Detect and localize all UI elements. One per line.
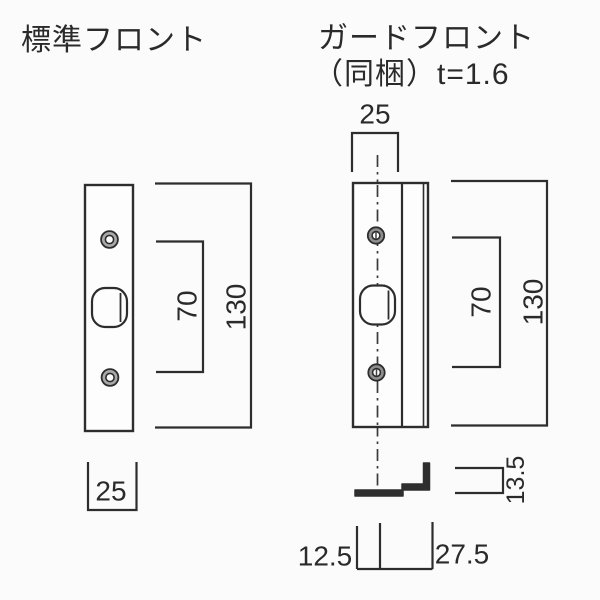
dim-label-total-height: 130 <box>221 284 252 331</box>
dim-bracket-bottom-offsets <box>357 522 433 569</box>
screw-hole-inner <box>106 373 114 381</box>
screw-hole-inner <box>105 235 113 243</box>
latch-opening <box>92 288 127 327</box>
cross-section-profile <box>355 463 430 496</box>
dim-label-width-top: 25 <box>359 99 390 130</box>
latch-outline <box>360 286 395 325</box>
dim-label-offset-right: 27.5 <box>435 539 490 570</box>
screw-hole-top <box>101 231 118 248</box>
dim-label-hole-spacing: 70 <box>172 290 203 321</box>
guard-front-drawing: ガードフロント （同梱）t=1.6 25 <box>298 22 549 572</box>
standard-front-title: 標準フロント <box>21 24 207 57</box>
guard-front-title-line1: ガードフロント <box>318 22 535 55</box>
dim-label-width: 25 <box>95 476 126 507</box>
dim-bracket-width-top <box>352 133 398 172</box>
dim-label-total-height: 130 <box>518 279 549 326</box>
screw-hole-bottom <box>368 364 384 380</box>
dim-label-flange-height: 13.5 <box>502 456 530 505</box>
latch-outline <box>92 288 127 327</box>
technical-drawing-sheet: 標準フロント 70 130 25 ガードフロント （同梱）t= <box>0 0 600 600</box>
dim-label-hole-spacing: 70 <box>466 286 497 317</box>
dim-label-offset-left: 12.5 <box>298 541 353 572</box>
drawing-svg: 標準フロント 70 130 25 ガードフロント （同梱）t= <box>0 0 600 600</box>
latch-opening <box>360 286 395 325</box>
screw-hole-bottom <box>102 369 119 386</box>
screw-hole-top <box>368 227 384 243</box>
dim-bracket-flange-height <box>455 468 503 493</box>
standard-front-drawing: 標準フロント 70 130 25 <box>21 24 252 510</box>
guard-front-title-line2: （同梱）t=1.6 <box>313 58 510 91</box>
